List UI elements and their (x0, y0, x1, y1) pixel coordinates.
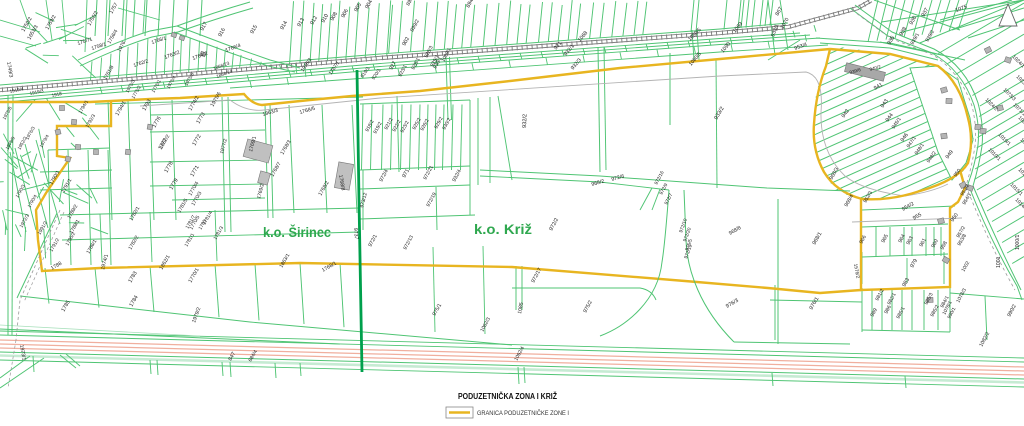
svg-text:1000/1: 1000/1 (1015, 234, 1021, 250)
svg-text:9737: 9737 (352, 228, 359, 240)
svg-text:GRANICA PODUZETNIČKE ZONE I: GRANICA PODUZETNIČKE ZONE I (477, 408, 569, 417)
svg-text:932/2: 932/2 (522, 114, 528, 128)
svg-text:PODUZETNIČKA ZONA I KRIŽ: PODUZETNIČKA ZONA I KRIŽ (458, 392, 557, 401)
svg-text:k.o. Širinec: k.o. Širinec (263, 225, 331, 240)
svg-text:k.o. Križ: k.o. Križ (474, 222, 532, 237)
svg-text:1001: 1001 (996, 256, 1002, 268)
